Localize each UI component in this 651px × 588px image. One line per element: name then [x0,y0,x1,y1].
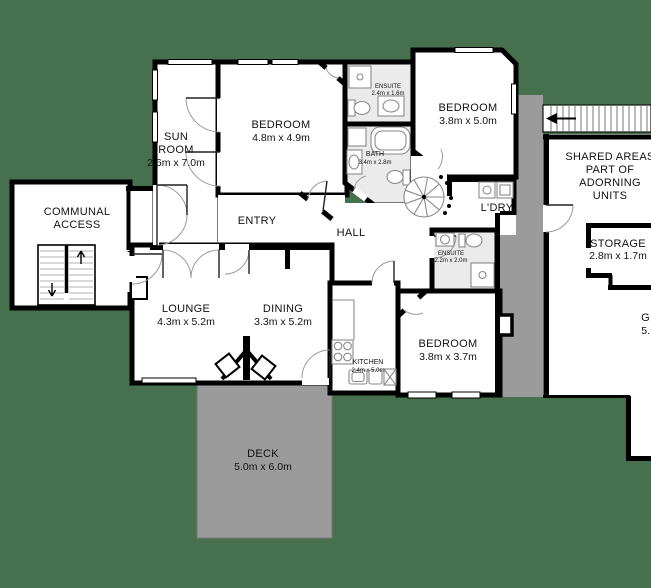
room-dims-dining: 3.3m x 5.2m [254,316,312,328]
shared-note-line2: PART OF [586,164,635,176]
shared-note-line4: UNITS [593,190,628,202]
room-label-laundry: L'DRY [481,202,514,214]
room-label-entry: ENTRY [238,215,277,227]
window-sunroom-left-b [153,112,158,142]
room-label-kitchen: KITCHEN [353,359,384,366]
room-dims-bedroom-2: 3.8m x 5.0m [439,115,497,127]
shared-note-line3: ADORNING [579,177,641,189]
room-label-communal-2: ACCESS [53,219,100,231]
room-label-deck: DECK [247,448,279,460]
sunroom-doors-gap [153,185,159,245]
laundry-sink [479,182,495,198]
shared-note-line1: SHARED AREAS [565,151,651,163]
room-dims-storage: 2.8m x 1.7m [589,250,647,262]
window-bedroom2-top [455,48,493,53]
window-bedroom1-top-a [238,60,268,65]
window-bedroom3-bottom-a [408,392,436,398]
ensuite1-shower [349,66,371,88]
room-dims-ensuite-1: 2.4m x 1.6m [371,91,404,97]
room-label-storage: STORAGE [590,238,646,250]
room-label-ensuite-2: ENSUITE [438,251,464,257]
adjoining-unit-door-gap [543,205,550,232]
window-bedroom2-right [512,84,517,114]
room-label-lounge: LOUNGE [162,303,210,315]
room-label-bedroom-1: BEDROOM [252,119,311,131]
ensuite1-toilet-icon [354,102,370,115]
lounge-door-gap [225,244,249,251]
external-walkway [543,105,651,132]
entry-double-door-gap [163,244,219,251]
communal-stairs [38,245,95,305]
room-label-sun-room-2: ROOM [158,144,193,156]
window-bedroom3-bottom-b [452,392,480,398]
bath-toilet-icon [387,171,403,184]
room-dims-sun-room: 2.6m x 7.0m [147,157,205,169]
room-dims-lounge: 4.3m x 5.2m [157,316,215,328]
room-label-bath: BATH [366,151,384,158]
room-label-hall: HALL [337,227,366,239]
hall-threshold [500,215,516,235]
room-label-bedroom-3: BEDROOM [419,338,478,350]
laundry-washer [497,182,513,198]
room-label-communal-1: COMMUNAL [44,206,111,218]
clipped-room-label: G [641,312,650,324]
window-sunroom-left-a [153,70,158,100]
room-dims-bedroom-3: 3.8m x 3.7m [419,351,477,363]
ensuite2-shower [471,263,494,287]
room-label-sun-room-1: SUN [164,131,188,143]
ensuite1-vanity [378,96,404,116]
ensuite2-toilet-icon [466,234,482,247]
room-dims-kitchen: 2.4m x 5.0m [351,368,384,374]
sunroom-inner-door-gap-b [217,152,223,186]
kitchen-door-gap [372,280,394,287]
bath-toilet-tank [403,170,410,185]
room-label-ensuite-1: ENSUITE [375,84,401,90]
deck-door-gap [302,378,329,385]
window-lounge-bottom [142,378,196,383]
room-label-bedroom-2: BEDROOM [439,102,498,114]
spiral-stair-pole [422,195,426,199]
room-dims-bath: 3.4m x 2.8m [358,160,391,166]
room-dims-ensuite-2: 2.2m x 2.0m [434,258,467,264]
window-bedroom1-top-b [272,60,298,65]
sunroom-inner-door-gap-a [217,98,223,132]
window-sunroom-top [168,60,212,65]
bath-shower [348,128,366,146]
ensuite2-door-gap [430,236,435,258]
ensuite2-toilet-tank [459,234,465,247]
room-dims-deck: 5.0m x 6.0m [234,461,292,473]
floor-plan: SUN ROOM 2.6m x 7.0m BEDROOM 4.8m x 4.9m… [0,0,651,588]
clipped-room-dims: 5. [641,325,650,337]
floor-plan-canvas: SUN ROOM 2.6m x 7.0m BEDROOM 4.8m x 4.9m… [0,0,651,588]
room-label-dining: DINING [263,303,303,315]
adjoining-unit-extension-floor [628,396,651,458]
room-dims-bedroom-1: 4.8m x 4.9m [252,132,310,144]
